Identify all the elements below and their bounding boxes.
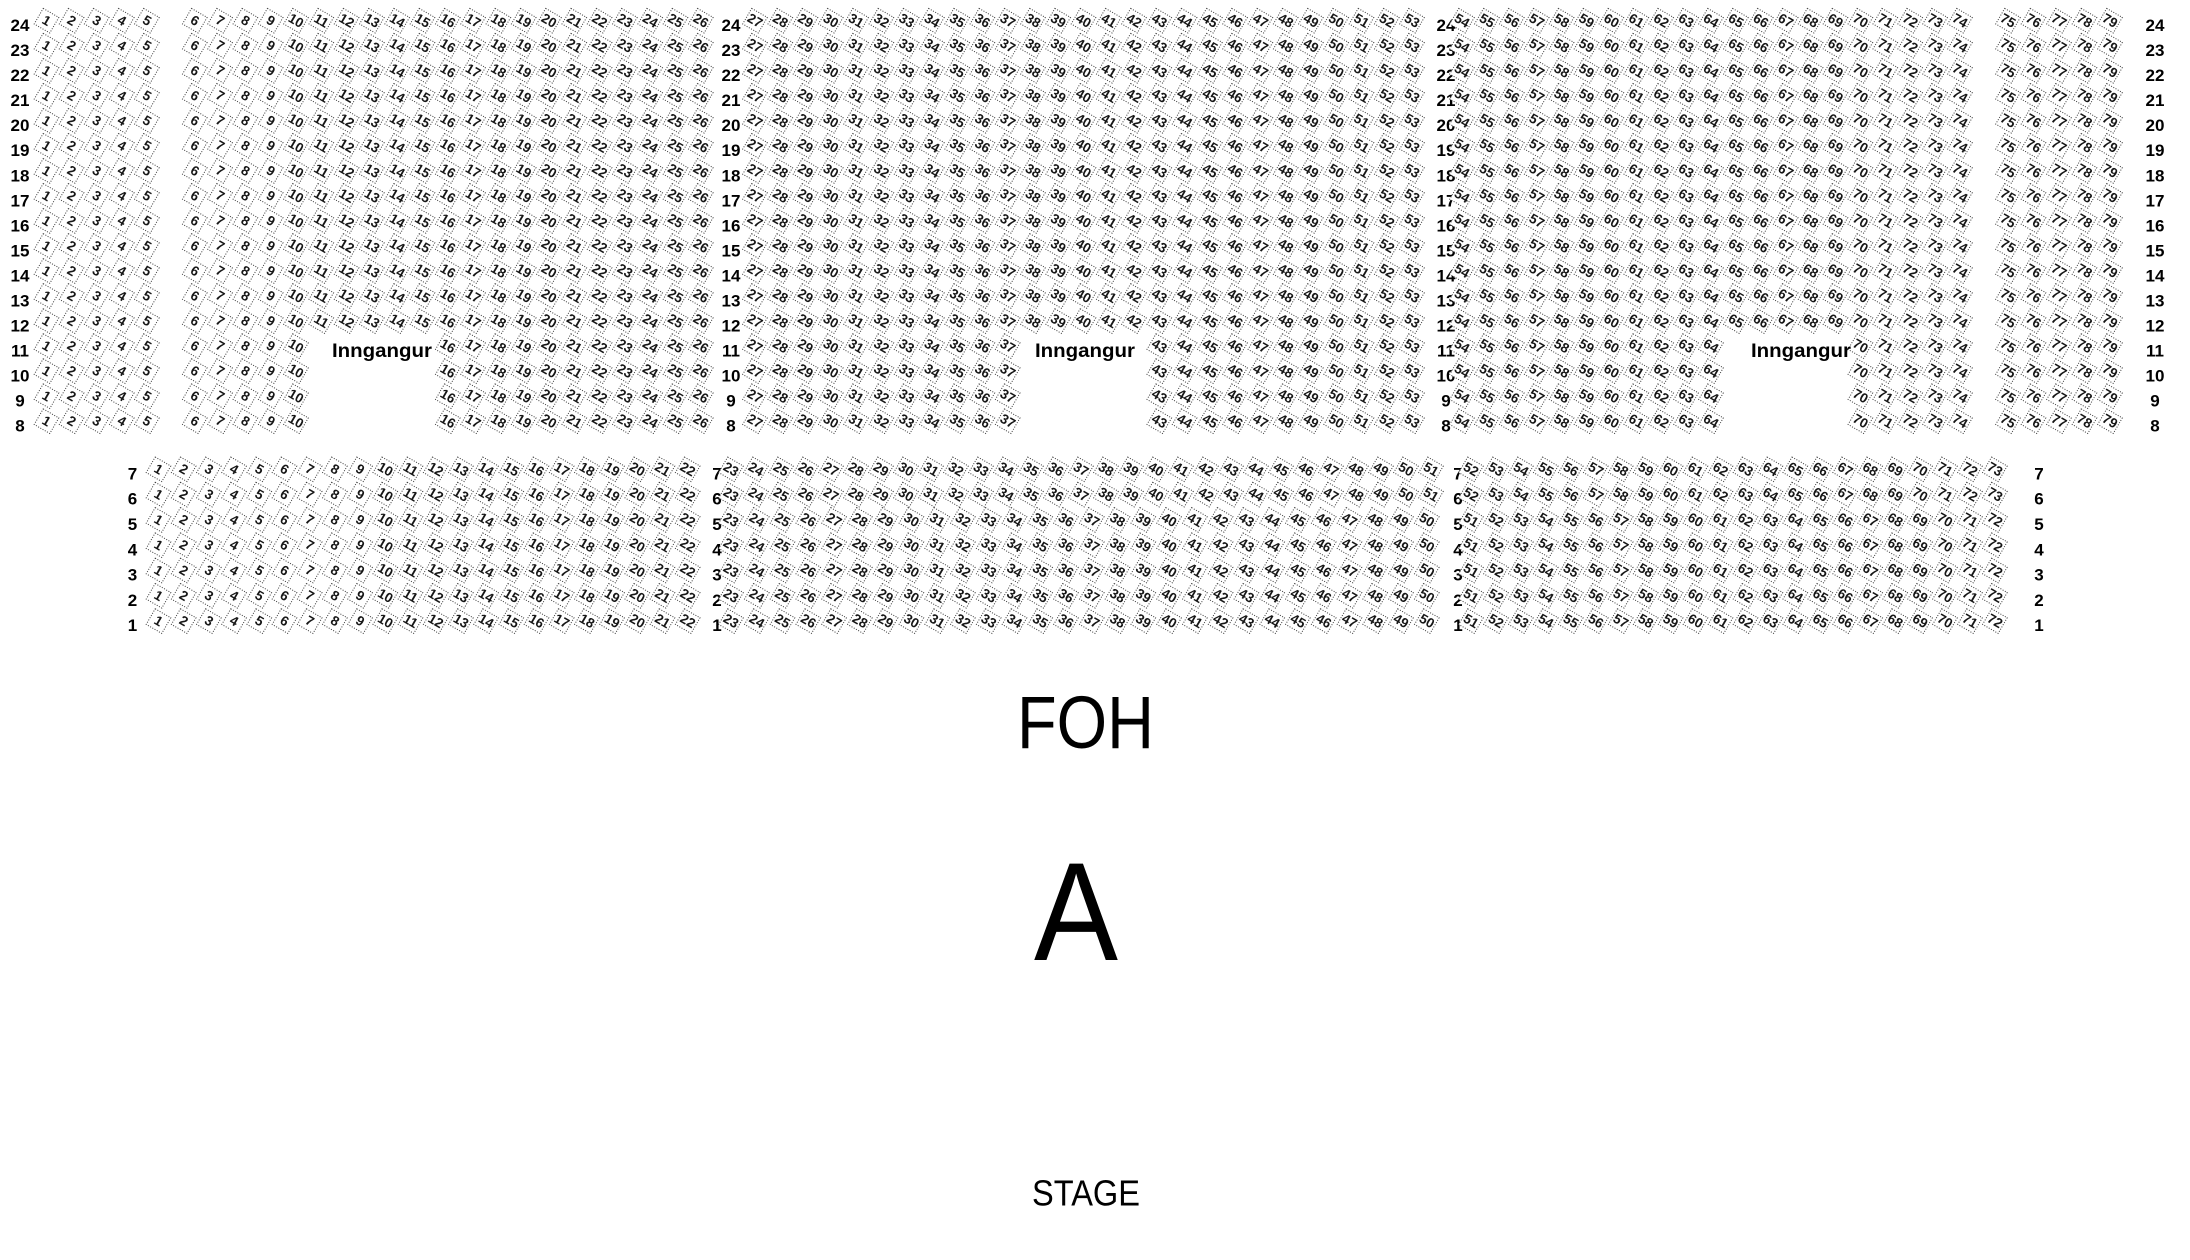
svg-text:15: 15: [412, 186, 433, 207]
svg-text:36: 36: [972, 110, 993, 131]
svg-text:10: 10: [286, 336, 307, 357]
svg-text:65: 65: [1785, 484, 1806, 505]
svg-text:22: 22: [589, 236, 610, 257]
svg-text:70: 70: [1850, 60, 1871, 81]
svg-text:62: 62: [1651, 186, 1672, 207]
svg-text:25: 25: [665, 261, 686, 282]
svg-text:35: 35: [947, 135, 968, 156]
svg-text:68: 68: [1800, 35, 1821, 56]
svg-text:59: 59: [1576, 186, 1597, 207]
svg-text:57: 57: [1526, 261, 1547, 282]
svg-text:31: 31: [846, 361, 867, 382]
svg-text:12: 12: [336, 286, 357, 307]
svg-text:44: 44: [1174, 336, 1195, 357]
svg-text:12: 12: [425, 611, 446, 632]
svg-text:72: 72: [1900, 135, 1921, 156]
svg-text:15: 15: [412, 60, 433, 81]
svg-text:45: 45: [1271, 459, 1292, 480]
svg-text:77: 77: [2049, 60, 2070, 81]
svg-text:72: 72: [1900, 10, 1921, 31]
svg-text:22: 22: [589, 60, 610, 81]
svg-text:78: 78: [2074, 411, 2095, 432]
svg-text:48: 48: [1365, 535, 1386, 556]
svg-text:62: 62: [1651, 361, 1672, 382]
svg-text:77: 77: [2049, 135, 2070, 156]
svg-text:17: 17: [11, 191, 30, 210]
svg-text:72: 72: [1900, 161, 1921, 182]
svg-text:58: 58: [1635, 510, 1656, 531]
svg-text:75: 75: [1998, 10, 2019, 31]
svg-text:58: 58: [1610, 459, 1631, 480]
svg-text:6: 6: [128, 490, 137, 509]
svg-text:38: 38: [1023, 261, 1044, 282]
svg-text:73: 73: [1925, 85, 1946, 106]
svg-text:57: 57: [1526, 60, 1547, 81]
svg-text:10: 10: [286, 311, 307, 332]
svg-text:44: 44: [1174, 211, 1195, 232]
svg-text:19: 19: [513, 35, 534, 56]
svg-text:45: 45: [1200, 336, 1221, 357]
svg-text:39: 39: [1133, 585, 1154, 606]
svg-text:69: 69: [1885, 459, 1906, 480]
svg-text:22: 22: [2146, 66, 2165, 85]
svg-text:63: 63: [1760, 510, 1781, 531]
svg-text:72: 72: [1985, 611, 2006, 632]
svg-text:2: 2: [2034, 591, 2043, 610]
svg-text:50: 50: [1326, 386, 1347, 407]
svg-text:51: 51: [1351, 85, 1372, 106]
svg-text:17: 17: [463, 336, 484, 357]
svg-text:42: 42: [1124, 286, 1145, 307]
svg-text:56: 56: [1502, 85, 1523, 106]
svg-text:30: 30: [901, 585, 922, 606]
svg-text:47: 47: [1250, 135, 1271, 156]
svg-text:16: 16: [438, 261, 459, 282]
svg-text:16: 16: [438, 35, 459, 56]
svg-text:27: 27: [821, 484, 842, 505]
svg-text:30: 30: [821, 10, 842, 31]
svg-text:28: 28: [770, 236, 791, 257]
svg-text:26: 26: [691, 10, 712, 31]
svg-text:36: 36: [1056, 535, 1077, 556]
svg-text:15: 15: [501, 510, 522, 531]
svg-text:24: 24: [747, 611, 768, 632]
svg-text:24: 24: [640, 10, 661, 31]
svg-text:21: 21: [564, 186, 585, 207]
svg-text:62: 62: [1735, 585, 1756, 606]
svg-text:34: 34: [1004, 585, 1025, 606]
svg-text:62: 62: [1651, 10, 1672, 31]
svg-text:22: 22: [589, 10, 610, 31]
svg-text:59: 59: [1576, 110, 1597, 131]
svg-text:31: 31: [846, 135, 867, 156]
svg-text:25: 25: [665, 311, 686, 332]
svg-text:50: 50: [1326, 236, 1347, 257]
svg-text:27: 27: [745, 110, 766, 131]
svg-text:53: 53: [1511, 510, 1532, 531]
svg-text:12: 12: [336, 161, 357, 182]
svg-text:52: 52: [1377, 186, 1398, 207]
svg-text:31: 31: [846, 85, 867, 106]
svg-text:11: 11: [2146, 342, 2164, 361]
svg-text:60: 60: [1685, 560, 1706, 581]
svg-text:77: 77: [2049, 10, 2070, 31]
svg-text:26: 26: [691, 286, 712, 307]
svg-text:65: 65: [1726, 60, 1747, 81]
svg-text:24: 24: [2146, 16, 2165, 35]
svg-text:12: 12: [336, 85, 357, 106]
svg-text:78: 78: [2074, 286, 2095, 307]
svg-text:52: 52: [1377, 361, 1398, 382]
svg-text:46: 46: [1225, 211, 1246, 232]
svg-text:20: 20: [539, 411, 560, 432]
svg-text:77: 77: [2049, 411, 2070, 432]
svg-text:11: 11: [401, 459, 421, 479]
svg-text:77: 77: [2049, 286, 2070, 307]
svg-text:60: 60: [1601, 311, 1622, 332]
svg-text:29: 29: [875, 510, 896, 531]
svg-text:26: 26: [691, 161, 712, 182]
svg-text:15: 15: [412, 85, 433, 106]
svg-text:39: 39: [1048, 161, 1069, 182]
svg-text:45: 45: [1200, 411, 1221, 432]
svg-text:51: 51: [1351, 161, 1372, 182]
svg-text:43: 43: [1149, 110, 1170, 131]
svg-text:31: 31: [921, 459, 942, 480]
svg-text:55: 55: [1477, 211, 1498, 232]
svg-text:41: 41: [1185, 535, 1206, 556]
svg-text:40: 40: [1146, 459, 1167, 480]
svg-text:51: 51: [1351, 60, 1372, 81]
svg-text:13: 13: [362, 286, 383, 307]
svg-text:41: 41: [1099, 110, 1120, 131]
svg-text:48: 48: [1275, 336, 1296, 357]
svg-text:35: 35: [947, 35, 968, 56]
svg-text:20: 20: [627, 510, 648, 531]
svg-text:47: 47: [1250, 186, 1271, 207]
svg-text:34: 34: [922, 135, 943, 156]
svg-text:33: 33: [978, 510, 999, 531]
svg-text:36: 36: [972, 211, 993, 232]
svg-text:67: 67: [1775, 85, 1796, 106]
svg-text:38: 38: [1023, 236, 1044, 257]
svg-text:61: 61: [1626, 261, 1647, 282]
svg-text:32: 32: [871, 211, 892, 232]
svg-text:73: 73: [1925, 161, 1946, 182]
svg-text:41: 41: [1099, 236, 1120, 257]
svg-text:37: 37: [997, 85, 1018, 106]
svg-text:33: 33: [896, 336, 917, 357]
svg-text:74: 74: [1950, 311, 1971, 332]
svg-text:51: 51: [1351, 110, 1372, 131]
svg-text:22: 22: [677, 535, 698, 556]
svg-text:5: 5: [2034, 515, 2043, 534]
svg-text:74: 74: [1950, 186, 1971, 207]
svg-text:19: 19: [602, 535, 623, 556]
svg-text:21: 21: [564, 85, 585, 106]
svg-text:58: 58: [1551, 161, 1572, 182]
svg-text:19: 19: [513, 85, 534, 106]
svg-text:61: 61: [1626, 35, 1647, 56]
svg-text:14: 14: [476, 611, 497, 632]
svg-text:48: 48: [1275, 85, 1296, 106]
svg-text:35: 35: [1030, 560, 1051, 581]
svg-text:36: 36: [972, 286, 993, 307]
svg-text:74: 74: [1950, 236, 1971, 257]
svg-text:16: 16: [526, 510, 547, 531]
svg-text:35: 35: [947, 336, 968, 357]
svg-text:71: 71: [1960, 585, 1981, 606]
svg-text:35: 35: [947, 60, 968, 81]
svg-text:68: 68: [1800, 236, 1821, 257]
svg-text:79: 79: [2100, 10, 2121, 31]
svg-text:55: 55: [1561, 535, 1582, 556]
svg-text:32: 32: [871, 336, 892, 357]
svg-text:22: 22: [589, 286, 610, 307]
svg-text:24: 24: [640, 286, 661, 307]
svg-text:10: 10: [286, 211, 307, 232]
svg-text:67: 67: [1775, 186, 1796, 207]
svg-text:61: 61: [1626, 336, 1647, 357]
svg-text:37: 37: [1082, 585, 1103, 606]
svg-text:16: 16: [438, 311, 459, 332]
svg-text:16: 16: [526, 560, 547, 581]
svg-text:13: 13: [722, 291, 741, 310]
svg-text:45: 45: [1200, 110, 1221, 131]
svg-text:29: 29: [795, 10, 816, 31]
svg-text:75: 75: [1998, 386, 2019, 407]
svg-text:50: 50: [1326, 311, 1347, 332]
svg-text:48: 48: [1275, 60, 1296, 81]
svg-text:71: 71: [1875, 35, 1896, 56]
svg-text:65: 65: [1726, 135, 1747, 156]
svg-text:62: 62: [1651, 35, 1672, 56]
svg-text:49: 49: [1371, 484, 1392, 505]
svg-text:66: 66: [1751, 311, 1772, 332]
svg-text:31: 31: [846, 35, 867, 56]
svg-text:34: 34: [922, 336, 943, 357]
svg-text:68: 68: [1800, 10, 1821, 31]
svg-text:32: 32: [871, 110, 892, 131]
svg-text:20: 20: [539, 85, 560, 106]
svg-text:39: 39: [1048, 261, 1069, 282]
svg-text:2: 2: [128, 591, 137, 610]
svg-text:52: 52: [1377, 236, 1398, 257]
svg-text:35: 35: [1030, 611, 1051, 632]
svg-text:33: 33: [978, 611, 999, 632]
svg-text:10: 10: [286, 60, 307, 81]
svg-text:65: 65: [1785, 459, 1806, 480]
svg-text:27: 27: [745, 85, 766, 106]
svg-text:16: 16: [438, 10, 459, 31]
svg-text:27: 27: [745, 261, 766, 282]
svg-text:69: 69: [1910, 535, 1931, 556]
svg-text:62: 62: [1651, 236, 1672, 257]
svg-text:38: 38: [1107, 535, 1128, 556]
svg-text:78: 78: [2074, 236, 2095, 257]
svg-text:40: 40: [1073, 261, 1094, 282]
svg-text:33: 33: [896, 411, 917, 432]
svg-text:18: 18: [488, 85, 509, 106]
svg-text:51: 51: [1351, 311, 1372, 332]
svg-text:52: 52: [1377, 386, 1398, 407]
svg-text:18: 18: [488, 361, 509, 382]
svg-text:51: 51: [1351, 261, 1372, 282]
svg-text:61: 61: [1626, 386, 1647, 407]
svg-text:72: 72: [1900, 186, 1921, 207]
svg-text:24: 24: [640, 60, 661, 81]
svg-text:46: 46: [1225, 261, 1246, 282]
svg-text:55: 55: [1477, 286, 1498, 307]
svg-text:15: 15: [501, 484, 522, 505]
svg-text:18: 18: [577, 510, 598, 531]
svg-text:45: 45: [1200, 10, 1221, 31]
svg-text:33: 33: [896, 211, 917, 232]
svg-text:12: 12: [336, 261, 357, 282]
svg-text:12: 12: [425, 560, 446, 581]
svg-text:67: 67: [1775, 161, 1796, 182]
svg-text:23: 23: [615, 186, 636, 207]
svg-text:16: 16: [438, 336, 459, 357]
svg-text:45: 45: [1200, 361, 1221, 382]
svg-text:18: 18: [577, 611, 598, 632]
svg-text:52: 52: [1377, 35, 1398, 56]
svg-text:32: 32: [953, 510, 974, 531]
svg-text:58: 58: [1551, 236, 1572, 257]
svg-text:64: 64: [1701, 161, 1722, 182]
svg-text:56: 56: [1502, 411, 1523, 432]
svg-text:18: 18: [488, 261, 509, 282]
svg-text:30: 30: [821, 110, 842, 131]
svg-text:10: 10: [286, 386, 307, 407]
svg-text:34: 34: [922, 60, 943, 81]
svg-text:64: 64: [1701, 211, 1722, 232]
svg-text:64: 64: [1701, 110, 1722, 131]
svg-text:41: 41: [1171, 459, 1192, 480]
svg-text:1: 1: [2034, 616, 2043, 635]
svg-text:53: 53: [1402, 386, 1423, 407]
svg-text:61: 61: [1685, 484, 1706, 505]
svg-text:55: 55: [1561, 611, 1582, 632]
svg-text:44: 44: [1174, 286, 1195, 307]
svg-text:24: 24: [640, 236, 661, 257]
svg-text:68: 68: [1860, 459, 1881, 480]
svg-text:54: 54: [1536, 510, 1557, 531]
svg-text:59: 59: [1576, 386, 1597, 407]
svg-text:7: 7: [2034, 464, 2043, 483]
svg-text:70: 70: [1850, 85, 1871, 106]
svg-text:73: 73: [1985, 459, 2006, 480]
svg-text:64: 64: [1760, 459, 1781, 480]
svg-text:57: 57: [1586, 484, 1607, 505]
svg-text:68: 68: [1800, 60, 1821, 81]
svg-text:37: 37: [1082, 560, 1103, 581]
svg-text:19: 19: [513, 161, 534, 182]
svg-text:61: 61: [1626, 211, 1647, 232]
svg-text:20: 20: [539, 361, 560, 382]
svg-text:79: 79: [2100, 161, 2121, 182]
svg-text:24: 24: [640, 135, 661, 156]
svg-text:30: 30: [821, 286, 842, 307]
svg-text:13: 13: [362, 211, 383, 232]
svg-text:70: 70: [1850, 361, 1871, 382]
svg-text:35: 35: [947, 10, 968, 31]
svg-text:48: 48: [1365, 585, 1386, 606]
svg-text:21: 21: [564, 236, 585, 257]
svg-text:63: 63: [1676, 236, 1697, 257]
svg-text:42: 42: [1210, 510, 1231, 531]
svg-text:69: 69: [1825, 186, 1846, 207]
svg-text:63: 63: [1760, 535, 1781, 556]
svg-text:27: 27: [745, 361, 766, 382]
svg-text:61: 61: [1710, 611, 1731, 632]
svg-text:72: 72: [1960, 459, 1981, 480]
svg-text:9: 9: [2150, 392, 2159, 411]
svg-text:33: 33: [896, 35, 917, 56]
svg-text:20: 20: [11, 116, 30, 135]
svg-text:56: 56: [1586, 510, 1607, 531]
svg-text:21: 21: [652, 535, 673, 556]
svg-text:12: 12: [425, 585, 446, 606]
svg-text:19: 19: [513, 110, 534, 131]
svg-text:75: 75: [1998, 311, 2019, 332]
svg-text:28: 28: [770, 186, 791, 207]
svg-text:42: 42: [1210, 535, 1231, 556]
svg-text:28: 28: [770, 60, 791, 81]
svg-text:9: 9: [15, 392, 24, 411]
svg-text:68: 68: [1860, 484, 1881, 505]
svg-text:66: 66: [1751, 186, 1772, 207]
svg-text:12: 12: [425, 535, 446, 556]
svg-text:35: 35: [1021, 459, 1042, 480]
svg-text:20: 20: [539, 161, 560, 182]
svg-text:68: 68: [1800, 186, 1821, 207]
svg-text:62: 62: [1735, 611, 1756, 632]
svg-text:62: 62: [1651, 286, 1672, 307]
svg-text:76: 76: [2023, 336, 2044, 357]
svg-text:58: 58: [1551, 211, 1572, 232]
svg-text:75: 75: [1998, 261, 2019, 282]
svg-text:23: 23: [615, 411, 636, 432]
svg-text:51: 51: [1461, 560, 1482, 581]
svg-text:7: 7: [128, 464, 137, 483]
svg-text:20: 20: [539, 35, 560, 56]
svg-text:32: 32: [871, 60, 892, 81]
svg-text:48: 48: [1275, 286, 1296, 307]
svg-text:58: 58: [1551, 110, 1572, 131]
svg-text:48: 48: [1275, 386, 1296, 407]
svg-text:43: 43: [1149, 161, 1170, 182]
svg-text:61: 61: [1710, 510, 1731, 531]
svg-text:48: 48: [1365, 611, 1386, 632]
svg-text:47: 47: [1339, 585, 1360, 606]
svg-text:51: 51: [1421, 459, 1442, 480]
svg-text:33: 33: [896, 60, 917, 81]
svg-text:73: 73: [1925, 60, 1946, 81]
svg-text:66: 66: [1751, 161, 1772, 182]
svg-text:75: 75: [1998, 336, 2019, 357]
svg-text:44: 44: [1262, 560, 1283, 581]
svg-text:65: 65: [1810, 611, 1831, 632]
svg-text:78: 78: [2074, 386, 2095, 407]
svg-text:22: 22: [589, 411, 610, 432]
svg-text:32: 32: [871, 361, 892, 382]
svg-text:22: 22: [589, 85, 610, 106]
svg-text:74: 74: [1950, 336, 1971, 357]
svg-text:45: 45: [1200, 161, 1221, 182]
svg-text:52: 52: [1377, 261, 1398, 282]
svg-text:37: 37: [997, 10, 1018, 31]
